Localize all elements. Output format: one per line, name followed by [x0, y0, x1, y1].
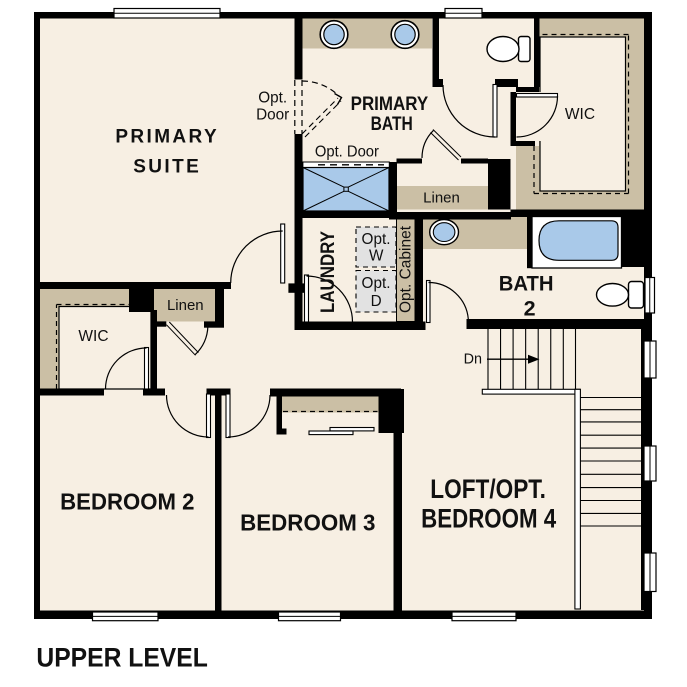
svg-text:BEDROOM 3: BEDROOM 3	[240, 510, 375, 536]
svg-text:WIC: WIC	[565, 106, 595, 123]
svg-text:SUITE: SUITE	[133, 156, 201, 177]
svg-text:UPPER LEVEL: UPPER LEVEL	[36, 642, 207, 672]
svg-text:Opt.: Opt.	[362, 275, 391, 292]
svg-text:BATH: BATH	[371, 114, 413, 135]
svg-text:Door: Door	[256, 106, 289, 123]
svg-text:BEDROOM 2: BEDROOM 2	[60, 489, 194, 515]
svg-text:Dn: Dn	[464, 352, 482, 368]
svg-text:D: D	[371, 293, 382, 310]
svg-text:Opt.: Opt.	[362, 231, 391, 248]
svg-text:PRIMARY: PRIMARY	[351, 94, 429, 115]
svg-text:Opt. Door: Opt. Door	[315, 144, 379, 161]
svg-text:LOFT/OPT.: LOFT/OPT.	[430, 474, 546, 504]
svg-text:BATH: BATH	[499, 272, 554, 296]
svg-text:Opt.: Opt.	[258, 89, 287, 106]
svg-text:BEDROOM 4: BEDROOM 4	[421, 504, 556, 534]
svg-text:Opt. Cabinet: Opt. Cabinet	[398, 225, 415, 313]
svg-text:W: W	[369, 248, 384, 265]
svg-text:PRIMARY: PRIMARY	[115, 126, 219, 147]
svg-text:LAUNDRY: LAUNDRY	[318, 231, 339, 313]
svg-text:WIC: WIC	[78, 328, 108, 345]
svg-text:2: 2	[524, 297, 536, 321]
svg-text:Linen: Linen	[423, 190, 460, 207]
svg-text:Linen: Linen	[167, 297, 204, 314]
